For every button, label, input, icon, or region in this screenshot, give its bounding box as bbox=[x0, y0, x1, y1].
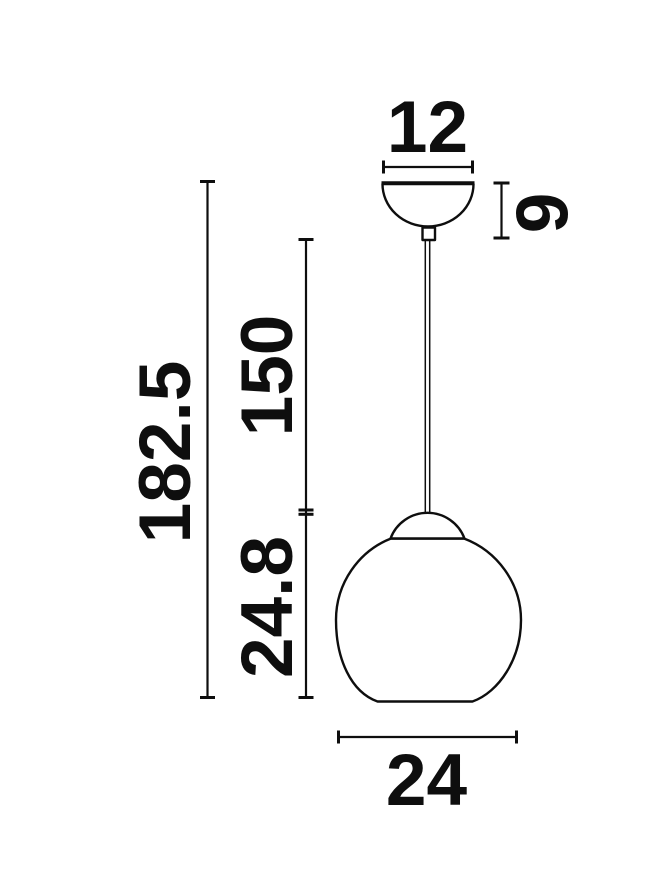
shade-diameter-label: 24 bbox=[386, 740, 468, 821]
canopy-bowl bbox=[383, 184, 474, 227]
lamp-fixture bbox=[336, 183, 521, 702]
canopy-connector bbox=[423, 228, 436, 241]
lamp-technical-drawing: 12 9 182.5 150 24.8 bbox=[0, 0, 667, 879]
canopy-width-label: 12 bbox=[387, 87, 468, 168]
dimension-canopy-width: 12 bbox=[384, 87, 473, 174]
dimension-overall-height: 182.5 bbox=[125, 182, 215, 698]
overall-height-label: 182.5 bbox=[125, 361, 206, 544]
shade-body bbox=[336, 539, 521, 702]
canopy-height-label: 9 bbox=[503, 193, 584, 234]
dimension-cord-and-shade: 150 24.8 bbox=[227, 240, 314, 698]
dimension-shade-diameter: 24 bbox=[339, 731, 517, 822]
shade-cap bbox=[391, 513, 465, 539]
cord-length-label: 150 bbox=[227, 315, 308, 437]
suspension-cable bbox=[425, 240, 429, 514]
shade-height-label: 24.8 bbox=[227, 536, 308, 678]
dimension-canopy-height: 9 bbox=[494, 183, 584, 238]
pendant-lamp-dimension-diagram: 12 9 182.5 150 24.8 bbox=[0, 0, 667, 879]
